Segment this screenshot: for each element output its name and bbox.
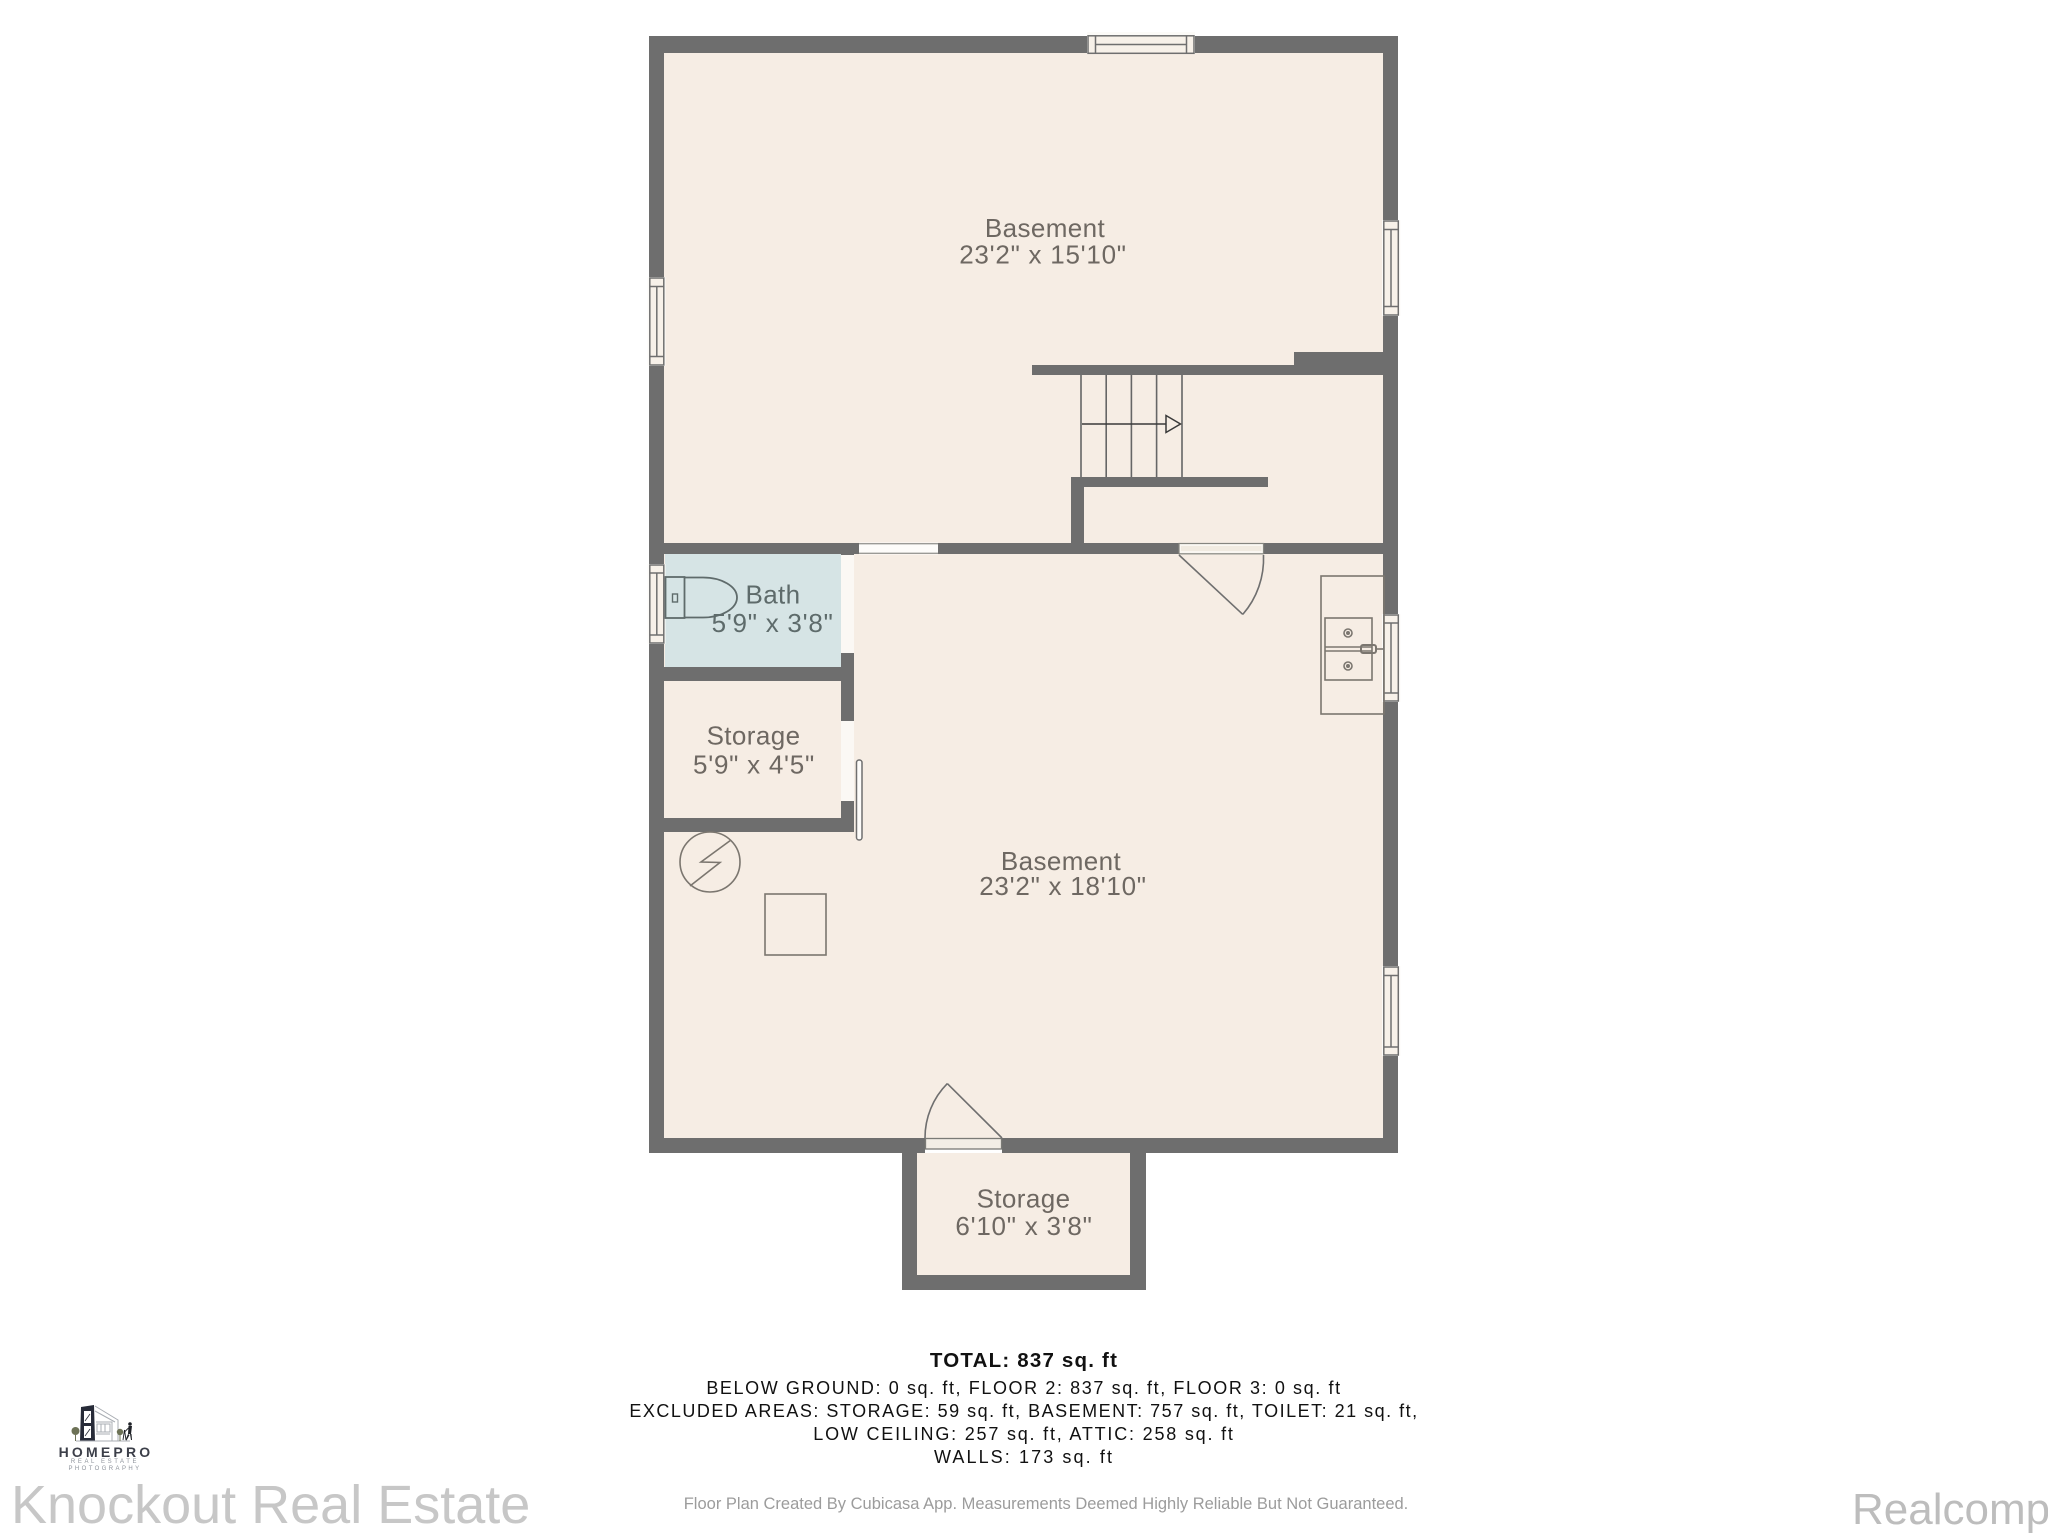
svg-text:5'9" x 3'8": 5'9" x 3'8" <box>712 608 834 638</box>
svg-text:23'2" x 18'10": 23'2" x 18'10" <box>979 871 1147 901</box>
svg-text:5'9" x 4'5": 5'9" x 4'5" <box>693 750 815 780</box>
svg-text:23'2" x 15'10": 23'2" x 15'10" <box>959 240 1127 270</box>
svg-text:Storage: Storage <box>707 721 801 751</box>
svg-text:Storage: Storage <box>977 1184 1071 1214</box>
svg-text:6'10" x 3'8": 6'10" x 3'8" <box>955 1211 1092 1241</box>
svg-text:Basement: Basement <box>985 213 1106 243</box>
svg-text:Bath: Bath <box>745 580 800 610</box>
